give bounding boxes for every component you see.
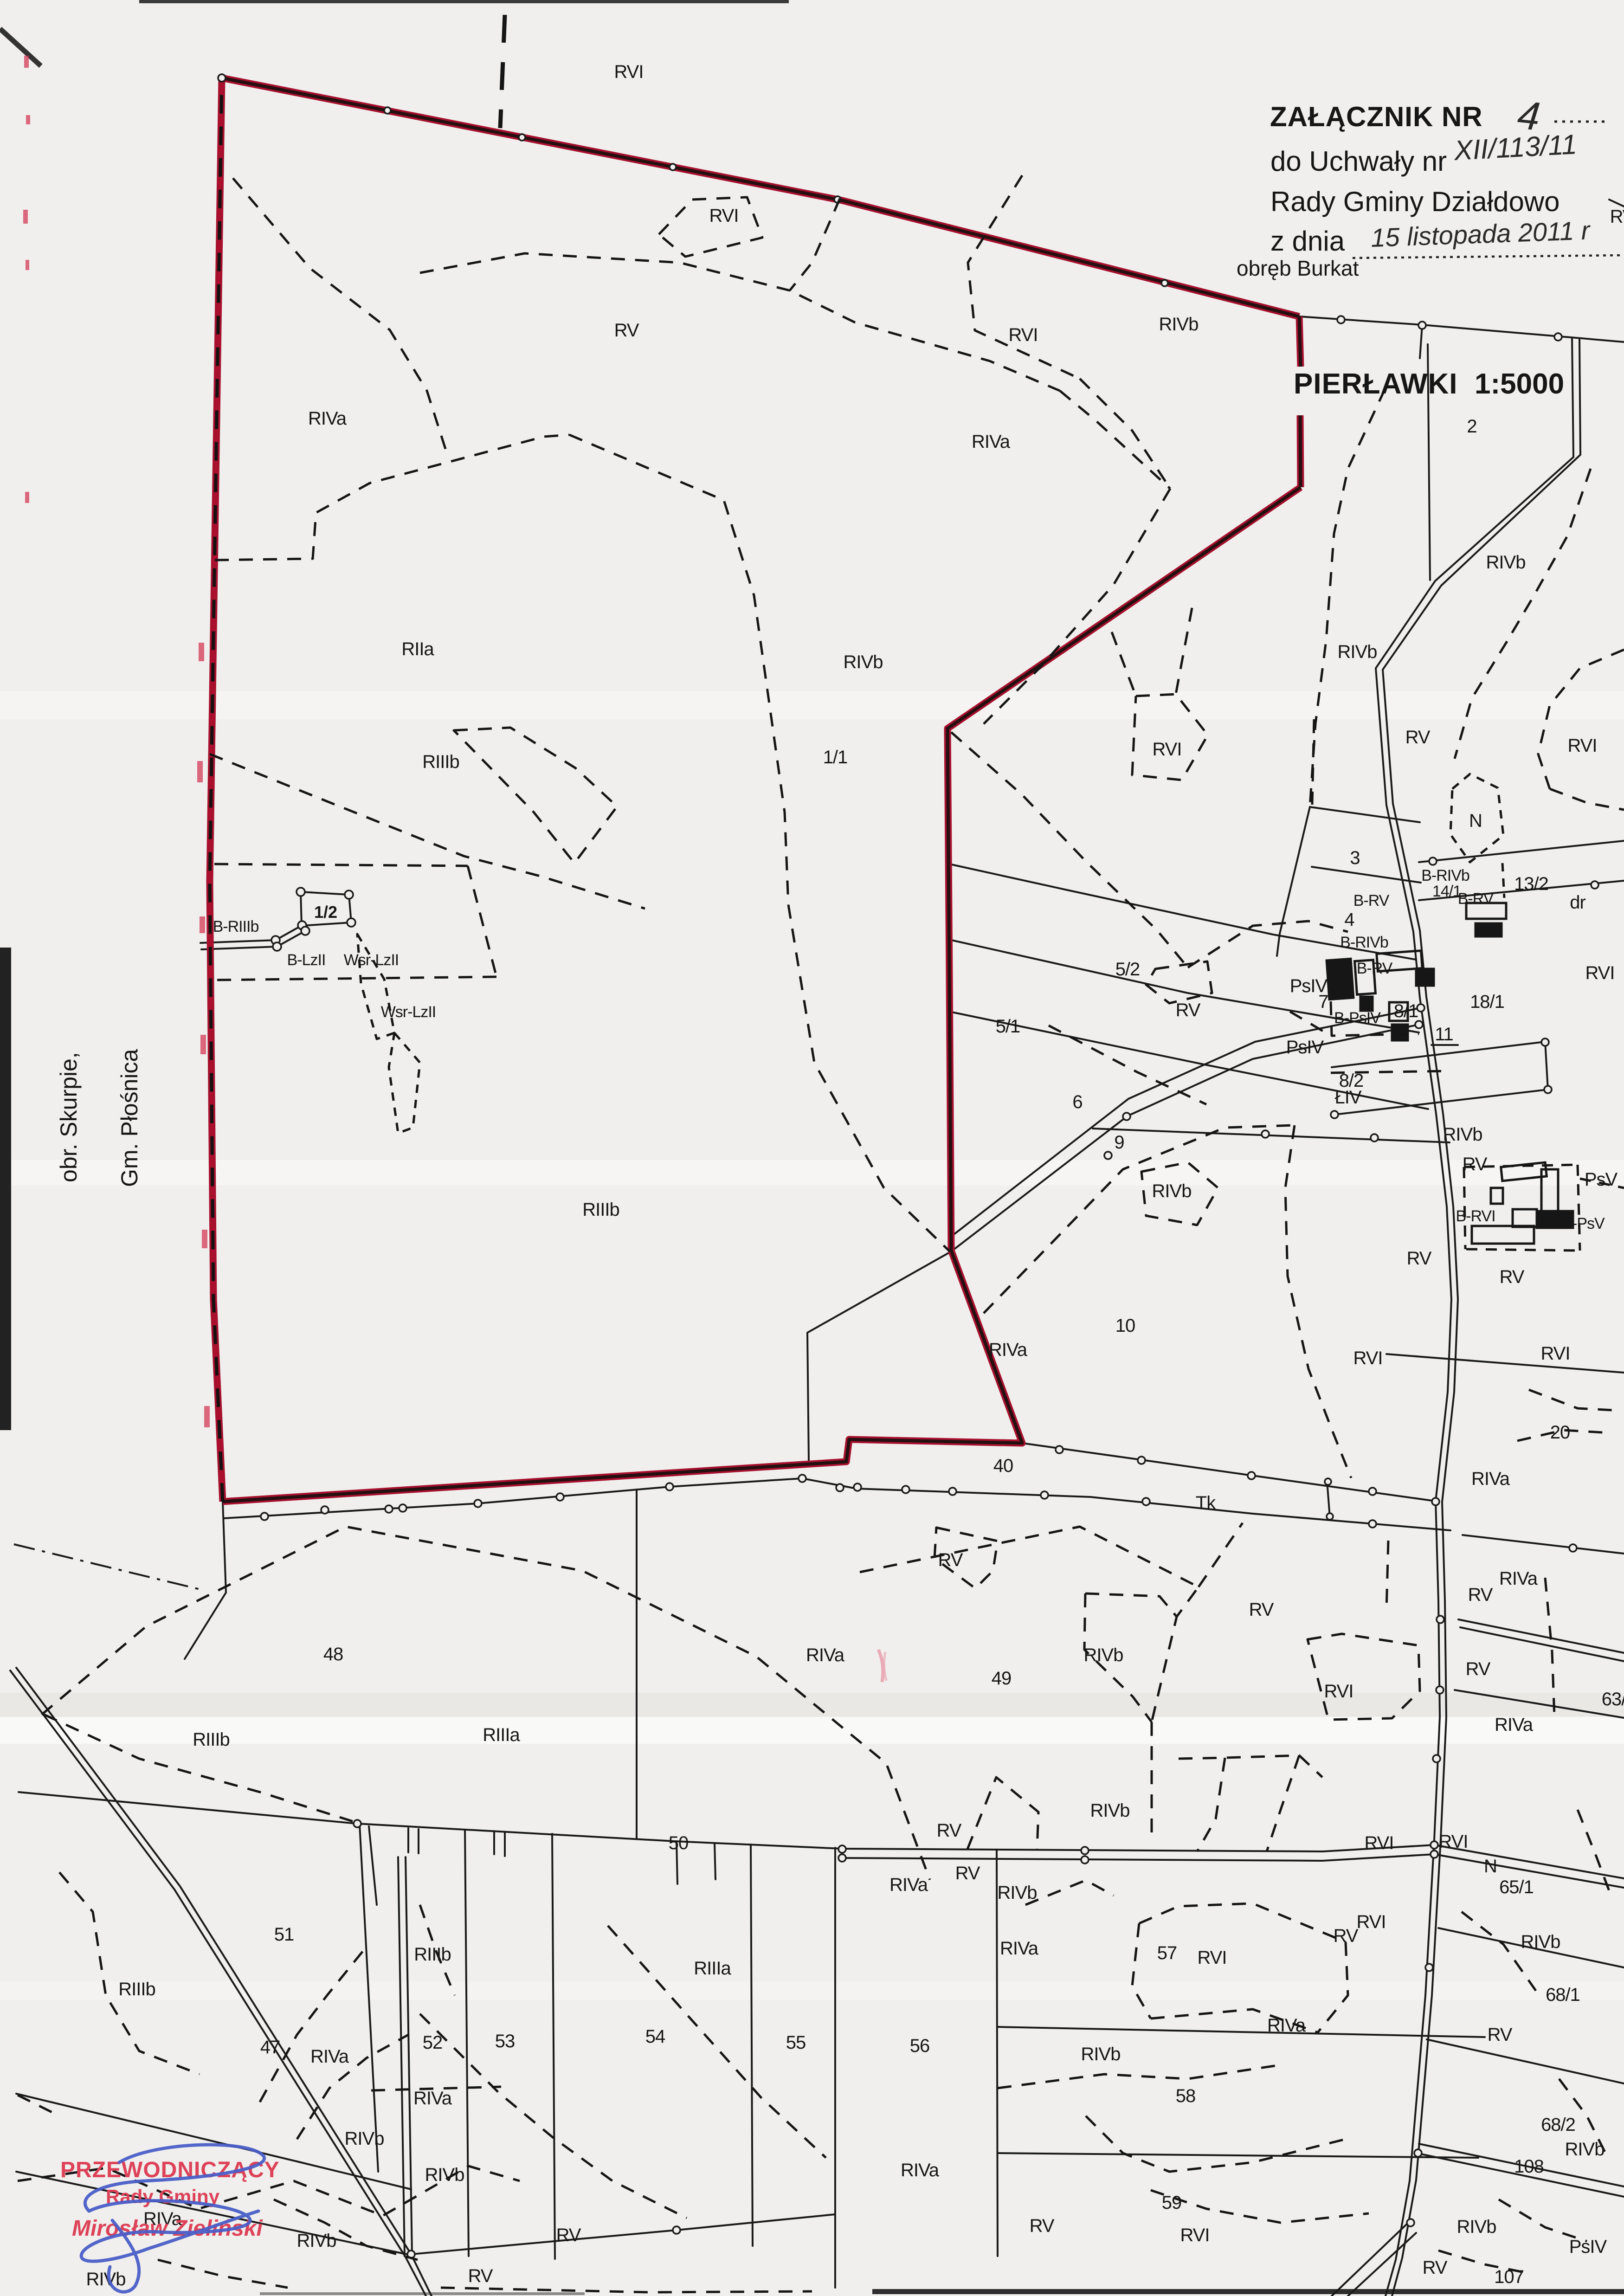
svg-text:RIIIa: RIIIa (483, 1725, 520, 1745)
svg-text:RIVa: RIVa (806, 1645, 845, 1665)
svg-text:RV: RV (1030, 2216, 1055, 2236)
svg-text:RVI: RVI (1353, 1348, 1383, 1368)
svg-text:obr. Skurpie,: obr. Skurpie, (56, 1052, 82, 1182)
svg-text:49: 49 (992, 1668, 1012, 1689)
svg-text:RVI: RVI (709, 206, 739, 226)
svg-text:RIVb: RIVb (425, 2165, 464, 2185)
svg-text:B-RIIIb: B-RIIIb (213, 918, 259, 935)
svg-text:ŁIV: ŁIV (1334, 1087, 1361, 1108)
svg-text:RIVa: RIVa (310, 2046, 349, 2067)
svg-text:68/1: 68/1 (1546, 1985, 1580, 2005)
svg-text:55: 55 (786, 2032, 806, 2053)
svg-text:RIIIa: RIIIa (694, 1958, 731, 1979)
svg-text:RIVa: RIVa (901, 2160, 940, 2180)
svg-text:RIVb: RIVb (1338, 642, 1377, 662)
svg-text:RIIIb: RIIIb (582, 1200, 619, 1220)
svg-text:RIVb: RIVb (1081, 2044, 1121, 2064)
svg-text:obręb Burkat: obręb Burkat (1237, 256, 1359, 280)
svg-text:RVI: RVI (1585, 963, 1615, 983)
svg-text:RVI: RVI (1365, 1833, 1394, 1853)
svg-text:RIVb: RIVb (998, 1883, 1037, 1903)
svg-text:4: 4 (1344, 909, 1354, 930)
svg-text:RV: RV (468, 2266, 493, 2286)
svg-text:53: 53 (495, 2031, 515, 2051)
svg-text:RVI: RVI (1439, 1832, 1468, 1852)
svg-text:107: 107 (1494, 2267, 1524, 2287)
svg-text:RV: RV (1463, 1154, 1488, 1174)
svg-text:5/2: 5/2 (1115, 959, 1140, 980)
svg-text:RVI: RVI (614, 62, 644, 82)
svg-text:Wsr-LzII: Wsr-LzII (381, 1003, 436, 1021)
svg-text:5/1: 5/1 (996, 1016, 1020, 1037)
svg-text:ZAŁĄCZNIK NR: ZAŁĄCZNIK NR (1270, 101, 1483, 132)
svg-text:40: 40 (993, 1456, 1013, 1476)
svg-text:N: N (1469, 811, 1482, 831)
svg-text:11: 11 (1435, 1024, 1453, 1045)
svg-text:57: 57 (1157, 1943, 1177, 1963)
svg-text:XII/113/11: XII/113/11 (1452, 129, 1578, 166)
svg-text:RV: RV (955, 1863, 980, 1883)
svg-text:7: 7 (1318, 992, 1328, 1012)
svg-text:9: 9 (1114, 1132, 1124, 1153)
svg-text:8/1: 8/1 (1394, 1001, 1418, 1021)
svg-text:Tk: Tk (1196, 1493, 1216, 1513)
svg-text:B-RV: B-RV (1458, 890, 1494, 908)
svg-text:RIVa: RIVa (1499, 1568, 1538, 1589)
svg-text:z dnia: z dnia (1270, 226, 1345, 257)
svg-text:RIVb: RIVb (1084, 1645, 1123, 1665)
svg-text:56: 56 (910, 2036, 930, 2056)
svg-text:PsV: PsV (1585, 1169, 1618, 1190)
svg-text:RIVb: RIVb (1090, 1800, 1130, 1821)
svg-text:14/1: 14/1 (1432, 883, 1461, 900)
svg-text:B-RIVb: B-RIVb (1340, 934, 1388, 951)
svg-text:RIVb: RIVb (297, 2231, 336, 2251)
svg-text:RIVa: RIVa (889, 1875, 928, 1895)
svg-text:PsIV: PsIV (1569, 2237, 1607, 2257)
svg-text:RIVb: RIVb (1152, 1181, 1192, 1201)
svg-text:RV: RV (1610, 206, 1624, 227)
svg-text:RIVa: RIVa (1267, 2015, 1306, 2036)
svg-text:RV: RV (1334, 1926, 1359, 1946)
svg-text:RIVa: RIVa (413, 2088, 452, 2109)
svg-text:N: N (1484, 1856, 1497, 1877)
svg-text:do Uchwały nr: do Uchwały nr (1270, 146, 1447, 177)
svg-text:RIVb: RIVb (1565, 2139, 1605, 2160)
svg-text:6: 6 (1072, 1092, 1082, 1112)
svg-text:B-PsV: B-PsV (1562, 1215, 1605, 1232)
svg-text:108: 108 (1514, 2156, 1544, 2177)
svg-text:47: 47 (260, 2037, 280, 2057)
svg-text:RVI: RVI (1009, 325, 1038, 345)
svg-text:RV: RV (938, 1550, 963, 1570)
svg-text:B-RVI: B-RVI (1456, 1207, 1495, 1225)
svg-text:RV: RV (1405, 727, 1431, 748)
svg-text:dr: dr (1570, 892, 1585, 913)
svg-text:RIIIb: RIIIb (414, 1944, 451, 1965)
svg-text:RV: RV (614, 320, 639, 341)
svg-text:Wsr-LzII: Wsr-LzII (344, 951, 399, 969)
svg-text:1/1: 1/1 (823, 747, 848, 767)
svg-text:B-RV: B-RV (1353, 892, 1390, 909)
svg-text:RV: RV (556, 2225, 581, 2245)
svg-text:65/1: 65/1 (1499, 1877, 1534, 1897)
svg-text:RIIIb: RIIIb (422, 752, 459, 772)
svg-text:RIVa: RIVa (1495, 1715, 1534, 1735)
svg-text:Gm. Płośnica: Gm. Płośnica (116, 1049, 142, 1187)
svg-text:58: 58 (1176, 2086, 1196, 2106)
svg-text:54: 54 (645, 2026, 665, 2047)
svg-text:RIVb: RIVb (1443, 1124, 1482, 1145)
svg-text:RIVb: RIVb (1457, 2217, 1496, 2237)
svg-text:51: 51 (274, 1924, 294, 1945)
svg-text:B-PsIV: B-PsIV (1334, 1009, 1381, 1027)
svg-text:RVI: RVI (1357, 1912, 1386, 1932)
svg-text:PIERŁAWKI: PIERŁAWKI (1294, 368, 1457, 400)
svg-text:RIVa: RIVa (308, 408, 347, 429)
svg-text:RV: RV (1488, 2025, 1513, 2045)
svg-text:Rady Gminy Działdowo: Rady Gminy Działdowo (1270, 186, 1560, 217)
svg-text:20: 20 (1550, 1422, 1570, 1443)
svg-text:RV: RV (1466, 1659, 1491, 1679)
svg-text:RIVb: RIVb (86, 2269, 126, 2290)
svg-text:59: 59 (1162, 2193, 1182, 2213)
svg-text:RIVb: RIVb (1486, 552, 1526, 573)
svg-text:48: 48 (323, 1644, 343, 1664)
svg-text:RIVa: RIVa (1000, 1938, 1039, 1959)
svg-text:RVI: RVI (1153, 739, 1182, 760)
svg-text:RIIa: RIIa (401, 639, 434, 659)
svg-text:18/1: 18/1 (1470, 992, 1504, 1012)
svg-text:3: 3 (1350, 848, 1360, 868)
svg-text:RVI: RVI (1180, 2225, 1210, 2245)
svg-text:RIIIb: RIIIb (118, 1979, 155, 1999)
svg-text:RVI: RVI (1198, 1948, 1227, 1968)
svg-text:RIVb: RIVb (844, 652, 883, 672)
svg-text:RIIIb: RIIIb (193, 1729, 229, 1750)
svg-text:RV: RV (1407, 1248, 1432, 1269)
svg-text:RV: RV (1500, 1267, 1525, 1287)
svg-text:RVI: RVI (1541, 1343, 1570, 1364)
svg-text:RIVa: RIVa (972, 432, 1011, 452)
svg-text:68/2: 68/2 (1541, 2115, 1575, 2135)
svg-text:B-RIVb: B-RIVb (1421, 867, 1469, 884)
svg-text:RV: RV (1423, 2257, 1448, 2278)
svg-text:RVI: RVI (1324, 1681, 1353, 1702)
svg-text:RIVb: RIVb (1521, 1932, 1560, 1952)
svg-text:50: 50 (669, 1833, 689, 1853)
svg-text:RIVb: RIVb (1159, 314, 1199, 335)
svg-text:RIVa: RIVa (989, 1340, 1028, 1360)
svg-text:RIVa: RIVa (1471, 1469, 1510, 1489)
svg-text:RVI: RVI (1568, 735, 1597, 756)
svg-text:10: 10 (1115, 1316, 1135, 1336)
svg-text:B-LzII: B-LzII (287, 951, 326, 969)
svg-text:RV: RV (1249, 1599, 1274, 1620)
svg-text:RV: RV (1468, 1585, 1493, 1605)
svg-text:1:5000: 1:5000 (1475, 368, 1564, 400)
svg-text:52: 52 (423, 2032, 443, 2053)
svg-text:RV: RV (937, 1820, 962, 1841)
svg-text:13/2: 13/2 (1514, 874, 1548, 894)
svg-text:2: 2 (1467, 416, 1476, 437)
svg-text:1/2: 1/2 (314, 903, 337, 922)
svg-text:63/: 63/ (1602, 1689, 1624, 1709)
svg-text:RIVb: RIVb (345, 2128, 384, 2149)
svg-text:B-RV: B-RV (1357, 960, 1393, 977)
svg-text:RV: RV (1176, 1000, 1201, 1020)
svg-text:PsIV: PsIV (1286, 1037, 1324, 1058)
